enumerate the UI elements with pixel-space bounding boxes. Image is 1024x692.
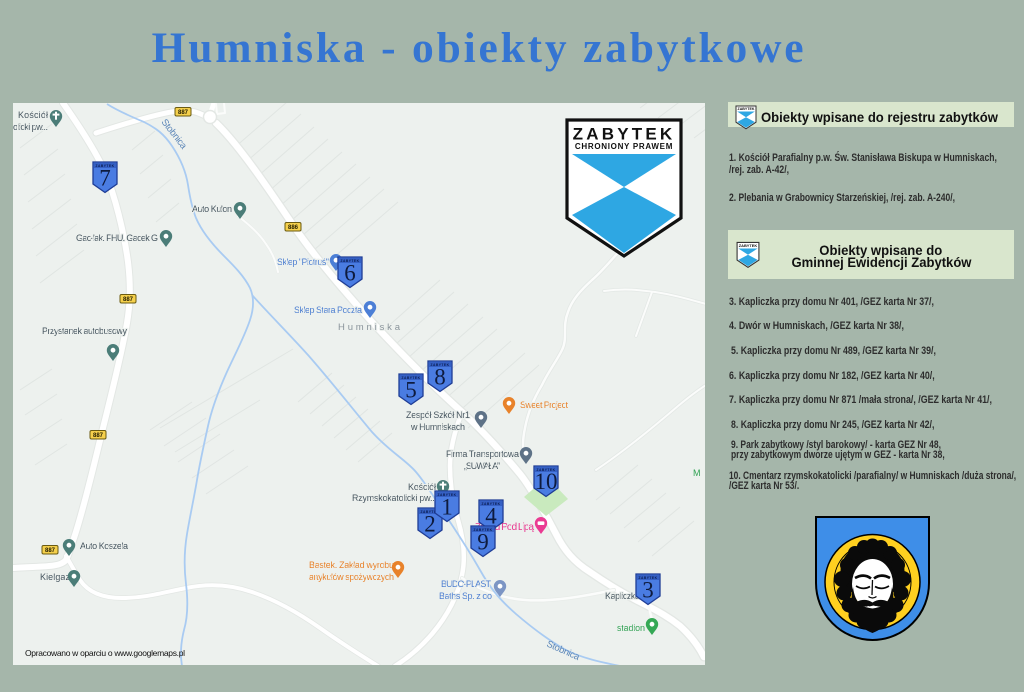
svg-text:Auto Koszela: Auto Koszela — [80, 541, 128, 551]
svg-text:M: M — [693, 468, 701, 478]
svg-text:ZABYTEK: ZABYTEK — [573, 125, 676, 144]
svg-text:3: 3 — [642, 578, 654, 603]
svg-text:ZABYTEK: ZABYTEK — [739, 243, 758, 248]
svg-text:9: 9 — [477, 530, 489, 555]
svg-text:887: 887 — [45, 548, 56, 554]
svg-text:Gac-lak. FHU. Gacek G: Gac-lak. FHU. Gacek G — [76, 233, 158, 243]
svg-text:„SUWAŁA”: „SUWAŁA” — [464, 461, 500, 471]
svg-text:8: 8 — [434, 365, 446, 390]
svg-text:Opracowano w oparciu o www.goo: Opracowano w oparciu o www.googlemaps.pl — [25, 648, 185, 658]
svg-text:Sweet Project: Sweet Project — [520, 400, 568, 410]
svg-text:Rzymskokatolicki pw...: Rzymskokatolicki pw... — [352, 493, 437, 503]
svg-text:1: 1 — [441, 495, 453, 520]
svg-text:4: 4 — [485, 504, 497, 529]
svg-text:10: 10 — [535, 469, 558, 494]
svg-text:Kielgaz: Kielgaz — [40, 572, 71, 582]
svg-text:887: 887 — [178, 110, 189, 116]
svg-text:887: 887 — [123, 297, 134, 303]
svg-text:ZABYTEK: ZABYTEK — [738, 107, 755, 111]
svg-text:2: 2 — [424, 512, 436, 537]
svg-text:Bastek. Zakład wyrobu: Bastek. Zakład wyrobu — [309, 560, 394, 570]
svg-text:Kościół: Kościół — [18, 110, 48, 120]
svg-text:artykułów spożywczych: artykułów spożywczych — [309, 572, 394, 582]
svg-text:olicki pw...: olicki pw... — [13, 122, 48, 132]
svg-text:Baths Sp. z oo: Baths Sp. z oo — [439, 591, 492, 601]
svg-text:Sklep "Piotruś": Sklep "Piotruś" — [277, 257, 329, 267]
svg-text:887: 887 — [93, 433, 104, 439]
svg-text:Humniska: Humniska — [338, 322, 401, 333]
svg-text:Zespół Szkół Nr1: Zespół Szkół Nr1 — [406, 410, 470, 420]
svg-text:5: 5 — [405, 378, 417, 403]
svg-text:w Humniskach: w Humniskach — [410, 422, 465, 432]
svg-text:stadion: stadion — [617, 623, 645, 633]
svg-text:Firma Transportowa: Firma Transportowa — [446, 449, 519, 459]
svg-text:Kościół: Kościół — [408, 482, 436, 492]
svg-text:886: 886 — [288, 225, 299, 231]
svg-text:7: 7 — [99, 166, 111, 191]
svg-text:Kapliczka: Kapliczka — [605, 591, 640, 601]
svg-text:BUDO-PLAST: BUDO-PLAST — [441, 579, 492, 589]
svg-text:Przystanek autobusowy: Przystanek autobusowy — [42, 326, 128, 336]
svg-text:CHRONIONY PRAWEM: CHRONIONY PRAWEM — [575, 142, 673, 151]
svg-text:6: 6 — [344, 261, 356, 286]
svg-text:Auto Kulon: Auto Kulon — [192, 204, 232, 214]
svg-text:Sklep Stara Poczta: Sklep Stara Poczta — [294, 305, 362, 315]
